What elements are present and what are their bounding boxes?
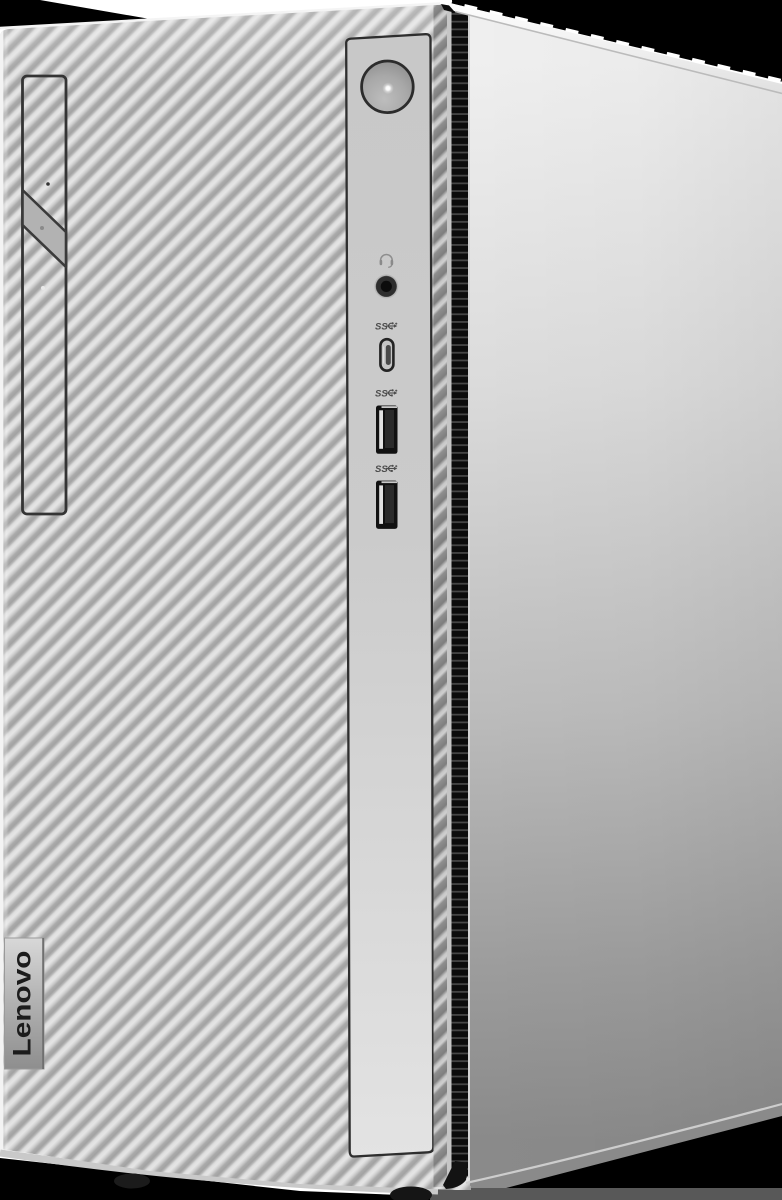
svg-text:Lenovo: Lenovo (9, 951, 37, 1057)
